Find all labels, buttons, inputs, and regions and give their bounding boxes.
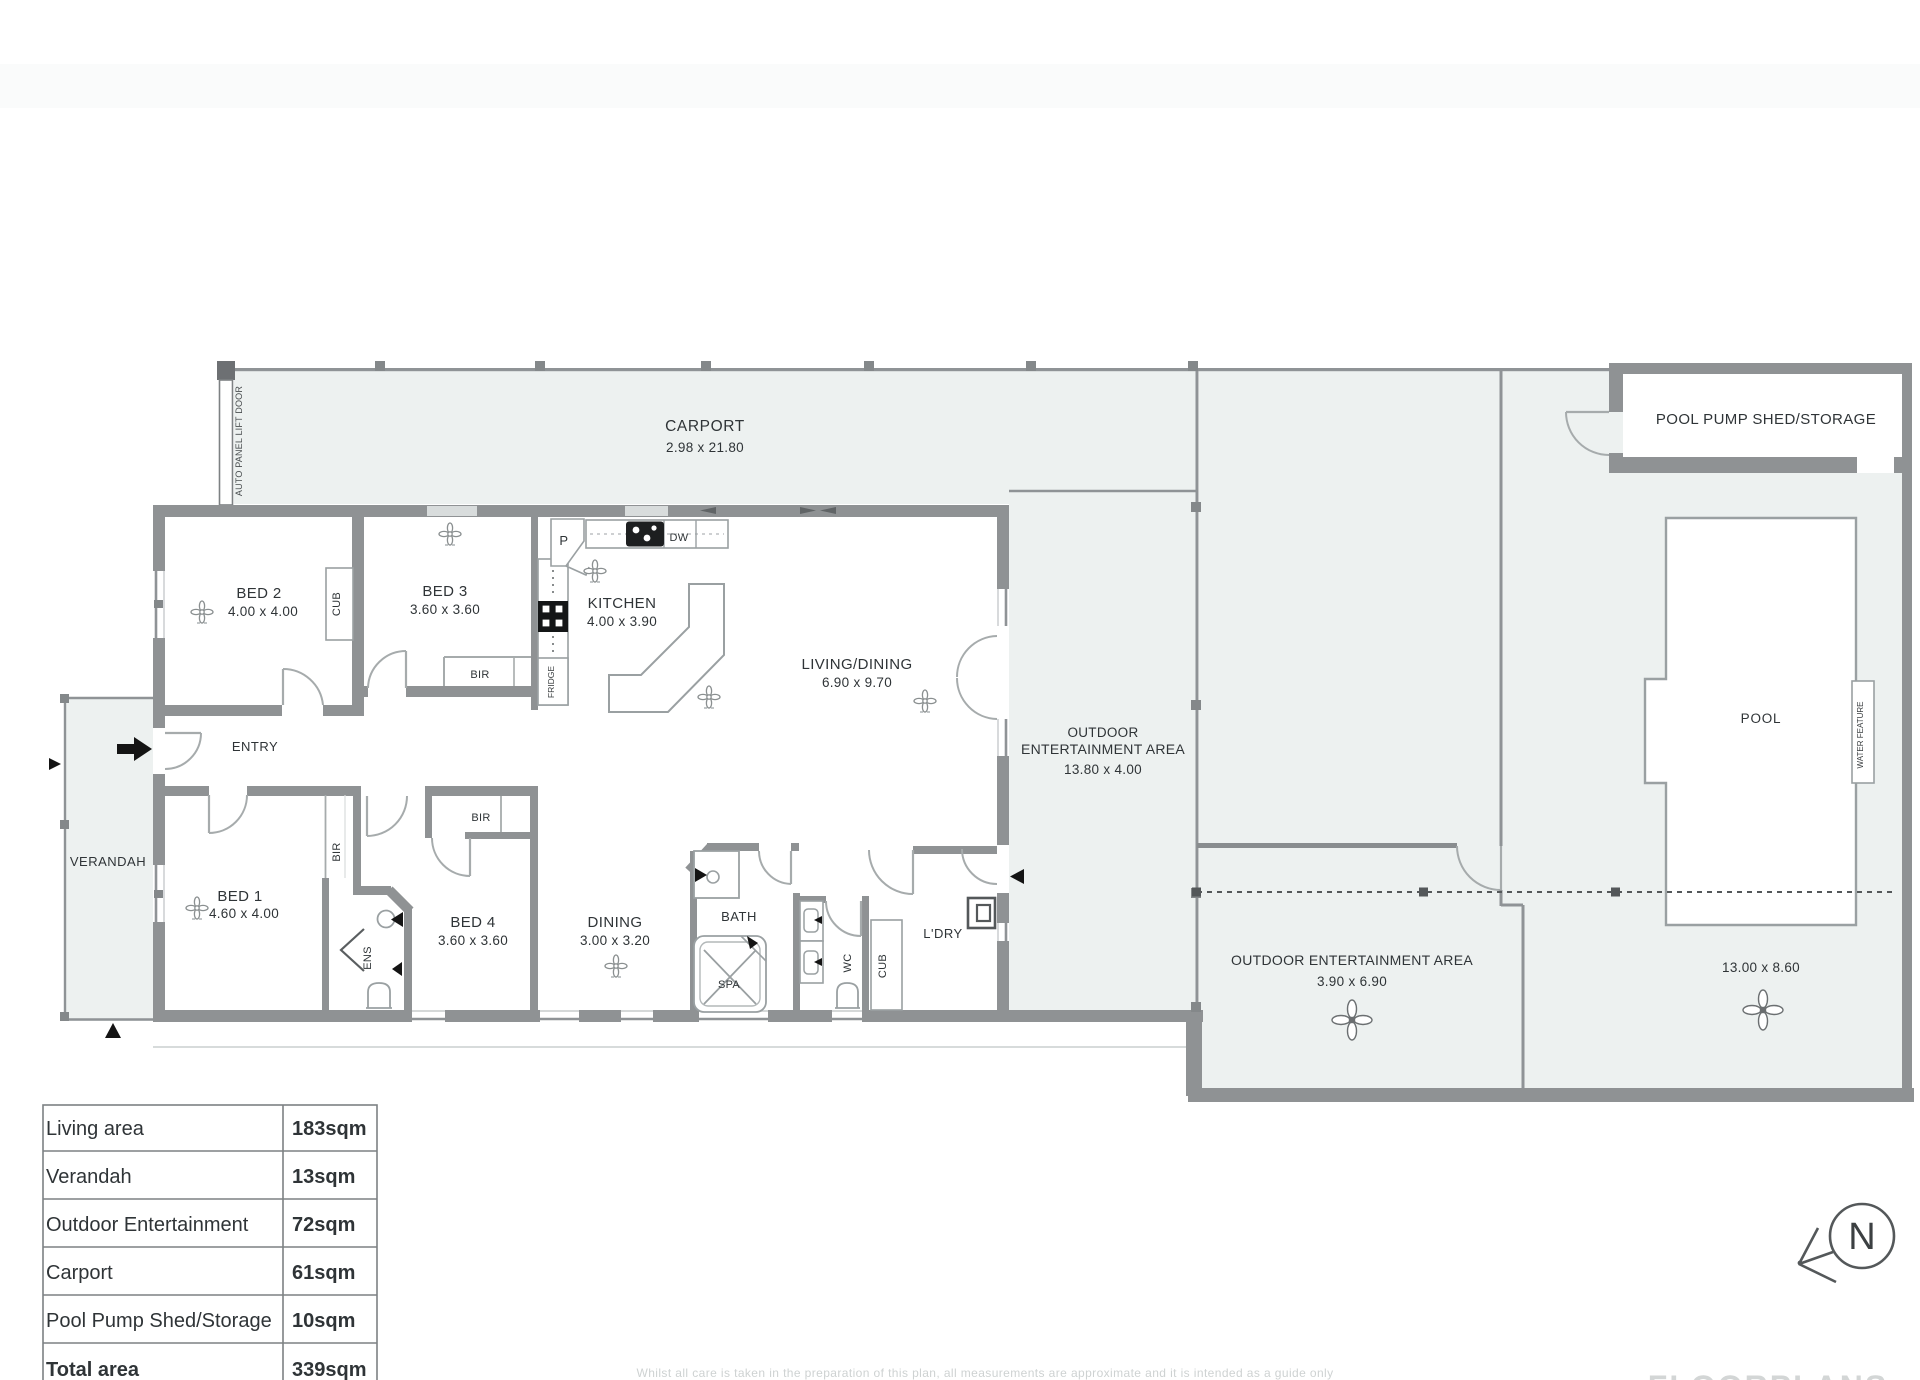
svg-text:FRIDGE: FRIDGE <box>546 666 556 698</box>
svg-text:AUTO PANEL LIFT DOOR: AUTO PANEL LIFT DOOR <box>234 386 244 496</box>
svg-text:BIR: BIR <box>470 669 489 681</box>
svg-text:CUB: CUB <box>877 954 889 978</box>
svg-text:DW: DW <box>670 532 689 544</box>
svg-text:WATER FEATURE: WATER FEATURE <box>1856 702 1865 769</box>
svg-text:339sqm: 339sqm <box>292 1359 367 1380</box>
svg-text:ENTERTAINMENT AREA: ENTERTAINMENT AREA <box>1021 741 1185 757</box>
svg-text:BIR: BIR <box>331 842 343 861</box>
svg-text:Outdoor Entertainment: Outdoor Entertainment <box>46 1214 249 1236</box>
svg-text:LIVING/DINING: LIVING/DINING <box>801 656 912 673</box>
svg-text:Living area: Living area <box>46 1118 145 1140</box>
svg-text:Pool Pump Shed/Storage: Pool Pump Shed/Storage <box>46 1310 272 1332</box>
svg-text:72sqm: 72sqm <box>292 1214 355 1236</box>
svg-text:4.60 x 4.00: 4.60 x 4.00 <box>209 906 279 921</box>
svg-text:OUTDOOR: OUTDOOR <box>1067 725 1138 740</box>
svg-text:3.60 x 3.60: 3.60 x 3.60 <box>438 933 508 948</box>
svg-text:183sqm: 183sqm <box>292 1118 367 1140</box>
svg-text:ENTRY: ENTRY <box>232 739 278 754</box>
svg-text:OUTDOOR ENTERTAINMENT AREA: OUTDOOR ENTERTAINMENT AREA <box>1231 952 1473 968</box>
svg-text:6.90 x 9.70: 6.90 x 9.70 <box>822 675 892 690</box>
svg-text:BIR: BIR <box>471 812 490 824</box>
svg-text:BED 4: BED 4 <box>450 914 495 931</box>
svg-text:3.90 x 6.90: 3.90 x 6.90 <box>1317 974 1387 989</box>
svg-text:DINING: DINING <box>588 914 643 931</box>
svg-text:BED 1: BED 1 <box>217 888 262 905</box>
svg-text:2.98 x 21.80: 2.98 x 21.80 <box>666 440 744 455</box>
svg-text:FLOORPLANS: FLOORPLANS <box>1648 1369 1888 1380</box>
svg-text:13.80 x 4.00: 13.80 x 4.00 <box>1064 762 1142 777</box>
svg-text:ENS: ENS <box>362 946 374 970</box>
svg-text:Total area: Total area <box>46 1359 140 1380</box>
svg-text:WC: WC <box>842 954 854 973</box>
svg-text:10sqm: 10sqm <box>292 1310 355 1332</box>
svg-text:P: P <box>559 533 568 548</box>
svg-text:BATH: BATH <box>721 909 757 924</box>
svg-text:3.00 x 3.20: 3.00 x 3.20 <box>580 933 650 948</box>
svg-text:4.00 x 3.90: 4.00 x 3.90 <box>587 614 657 629</box>
svg-text:13.00 x 8.60: 13.00 x 8.60 <box>1722 960 1800 975</box>
svg-text:3.60 x 3.60: 3.60 x 3.60 <box>410 602 480 617</box>
svg-text:CARPORT: CARPORT <box>665 418 745 435</box>
svg-text:L'DRY: L'DRY <box>923 926 962 941</box>
svg-text:Whilst all care is taken in th: Whilst all care is taken in the preparat… <box>636 1366 1333 1380</box>
svg-text:CUB: CUB <box>331 592 343 616</box>
svg-text:4.00 x 4.00: 4.00 x 4.00 <box>228 604 298 619</box>
svg-text:POOL PUMP SHED/STORAGE: POOL PUMP SHED/STORAGE <box>1656 411 1876 428</box>
svg-text:KITCHEN: KITCHEN <box>588 595 657 612</box>
svg-text:BED 2: BED 2 <box>236 585 281 602</box>
svg-text:SPA: SPA <box>718 979 740 991</box>
svg-text:VERANDAH: VERANDAH <box>70 854 146 869</box>
svg-text:13sqm: 13sqm <box>292 1166 355 1188</box>
svg-text:61sqm: 61sqm <box>292 1262 355 1284</box>
svg-text:N: N <box>1848 1216 1875 1258</box>
svg-text:Carport: Carport <box>46 1262 113 1284</box>
svg-text:POOL: POOL <box>1741 711 1782 726</box>
svg-text:Verandah: Verandah <box>46 1166 132 1188</box>
svg-text:BED 3: BED 3 <box>422 583 467 600</box>
